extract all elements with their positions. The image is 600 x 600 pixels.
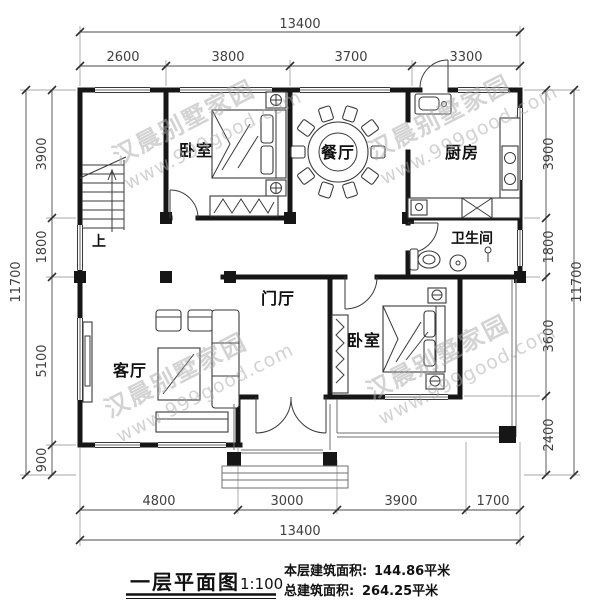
total-area-value: 264.25平米 [362,583,439,599]
total-area-label: 总建筑面积: [284,583,354,599]
foyer: 门厅 [261,289,295,308]
room-label-bedroom2: 卧室 [347,331,381,350]
dim-top-total: 13400 [279,17,320,32]
dim-bottom-seg-3: 3900 [384,494,417,509]
stair-up-label: 上 [92,234,106,250]
dim-top-seg-3: 3700 [334,50,367,65]
dimension-right: 3900 1800 3600 2400 11700 [542,86,585,479]
floor-area-value: 144.86平米 [374,563,451,579]
floor-plan-page: 13400 2600 3800 3700 3300 4800 3000 3900… [0,0,600,600]
kitchen-exterior-door [420,60,448,88]
dimension-bottom: 4800 3000 3900 1700 13400 [76,494,524,544]
bathroom: 卫生间 [410,230,493,271]
floor-area-label: 本层建筑面积: [284,563,367,579]
plan-title: 一层平面图 [130,570,240,594]
wardrobe-bedroom2 [332,315,348,393]
water-heater [450,255,466,271]
title-block: 一层平面图 1:100 本层建筑面积: 144.86平米 总建筑面积: 264.… [126,563,451,599]
dim-right-seg-1: 3900 [542,137,557,170]
bedroom2-door [345,277,377,309]
bedroom1-door [170,190,198,218]
dim-left-seg-4: 900 [35,448,50,473]
dim-right-seg-2: 1800 [542,230,557,263]
dim-top-seg-2: 3800 [211,50,244,65]
dim-top-seg-4: 3300 [449,50,482,65]
floor-plan-svg: 13400 2600 3800 3700 3300 4800 3000 3900… [0,0,600,600]
dim-bottom-seg-2: 3000 [270,494,303,509]
tv-cabinet [83,322,92,402]
entry-double-door [256,397,326,433]
dimension-left: 3900 1800 5100 900 11700 [9,86,56,479]
dim-left-seg-1: 3900 [35,137,50,170]
dim-top-seg-1: 2600 [106,50,139,65]
dim-left-seg-2: 1800 [35,230,50,263]
dim-bottom-seg-1: 4800 [142,494,175,509]
stairs: 上 [80,157,126,250]
toilet [410,249,418,270]
watermark-2: 汉晨别墅家园 www.999good.com [362,52,561,189]
shower-head [485,247,491,253]
dim-right-seg-4: 2400 [542,418,557,451]
dim-bottom-seg-4: 1700 [476,494,509,509]
dimension-top: 13400 2600 3800 3700 3300 [76,17,524,70]
plan-scale: 1:100 [240,575,283,593]
room-label-foyer: 门厅 [261,289,295,308]
dim-left-total: 11700 [9,261,24,302]
dim-right-total: 11700 [570,261,585,302]
dim-left-seg-3: 5100 [35,344,50,377]
dim-bottom-total: 13400 [279,524,320,539]
room-label-dining: 餐厅 [320,143,355,162]
room-label-bathroom: 卫生间 [451,230,493,247]
